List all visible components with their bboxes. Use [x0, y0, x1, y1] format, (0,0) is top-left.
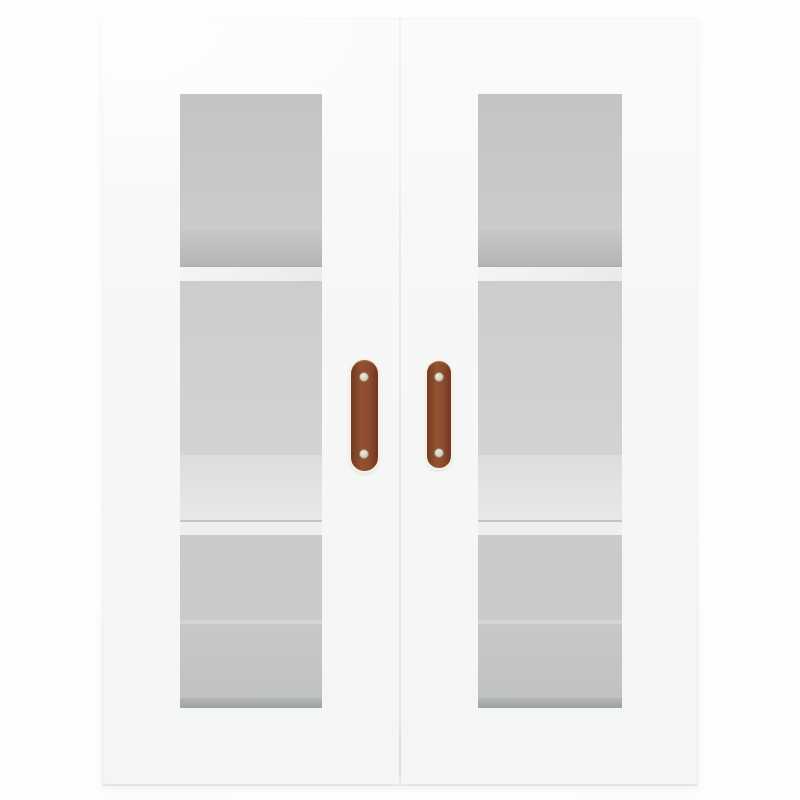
shelf-1	[478, 266, 622, 281]
glass-top-section	[180, 94, 322, 230]
right-door-handle	[427, 361, 451, 468]
shelf-shadow	[180, 230, 322, 266]
left-door-glass-panel	[180, 94, 322, 708]
handle-rivet-top-icon	[434, 372, 444, 382]
glass-middle-section	[478, 281, 622, 455]
shelf-2	[180, 520, 322, 535]
door-seam	[399, 18, 401, 786]
glass-bottom-section	[180, 624, 322, 698]
shelf-1	[180, 266, 322, 281]
cabinet	[102, 18, 698, 786]
glass-lower-section	[478, 535, 622, 620]
glass-bottom-section	[478, 624, 622, 698]
shelf-shadow	[478, 230, 622, 266]
glass-bright-section	[478, 455, 622, 520]
glass-middle-section	[180, 281, 322, 455]
handle-rivet-top-icon	[359, 372, 369, 382]
right-door-glass-panel	[478, 94, 622, 708]
handle-rivet-bottom-icon	[434, 448, 444, 458]
product-photo	[0, 0, 800, 800]
handle-rivet-bottom-icon	[359, 449, 369, 459]
glass-bright-section	[180, 455, 322, 520]
shelf-2	[478, 520, 622, 535]
glass-bottom-shadow	[180, 698, 322, 708]
glass-lower-section	[180, 535, 322, 620]
glass-top-section	[478, 94, 622, 230]
left-door-handle	[351, 360, 378, 471]
glass-bottom-shadow	[478, 698, 622, 708]
